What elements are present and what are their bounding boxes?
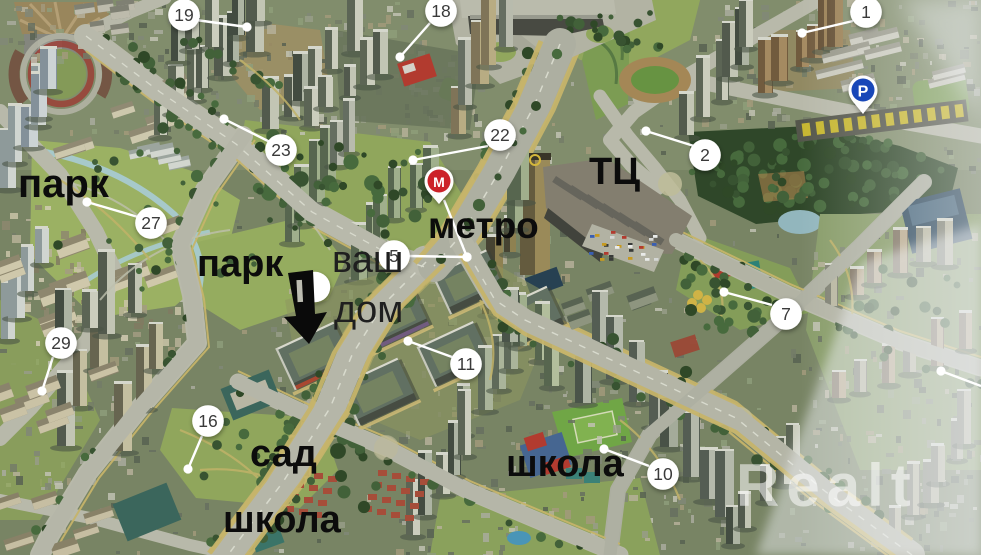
svg-text:парк: парк (18, 162, 110, 206)
svg-text:22: 22 (490, 125, 509, 145)
svg-text:16: 16 (198, 411, 217, 431)
svg-text:1: 1 (861, 2, 871, 22)
svg-text:школа: школа (506, 443, 625, 485)
svg-text:18: 18 (431, 1, 450, 21)
svg-text:19: 19 (174, 5, 193, 25)
svg-text:11: 11 (457, 354, 475, 374)
svg-text:P: P (858, 84, 869, 101)
svg-text:2: 2 (700, 145, 710, 165)
svg-text:23: 23 (271, 140, 290, 160)
svg-text:ТЦ: ТЦ (589, 151, 640, 193)
svg-text:школа: школа (223, 499, 342, 541)
svg-text:ваш: ваш (332, 239, 403, 281)
svg-text:7: 7 (781, 304, 791, 324)
svg-text:сад: сад (250, 433, 317, 475)
svg-text:дом: дом (334, 289, 403, 331)
svg-text:29: 29 (51, 333, 70, 353)
svg-text:10: 10 (653, 464, 673, 484)
svg-text:метро: метро (428, 205, 539, 246)
svg-text:парк: парк (197, 243, 284, 285)
svg-text:Realt: Realt (736, 452, 918, 519)
svg-text:27: 27 (141, 213, 160, 233)
svg-text:М: М (433, 174, 445, 190)
